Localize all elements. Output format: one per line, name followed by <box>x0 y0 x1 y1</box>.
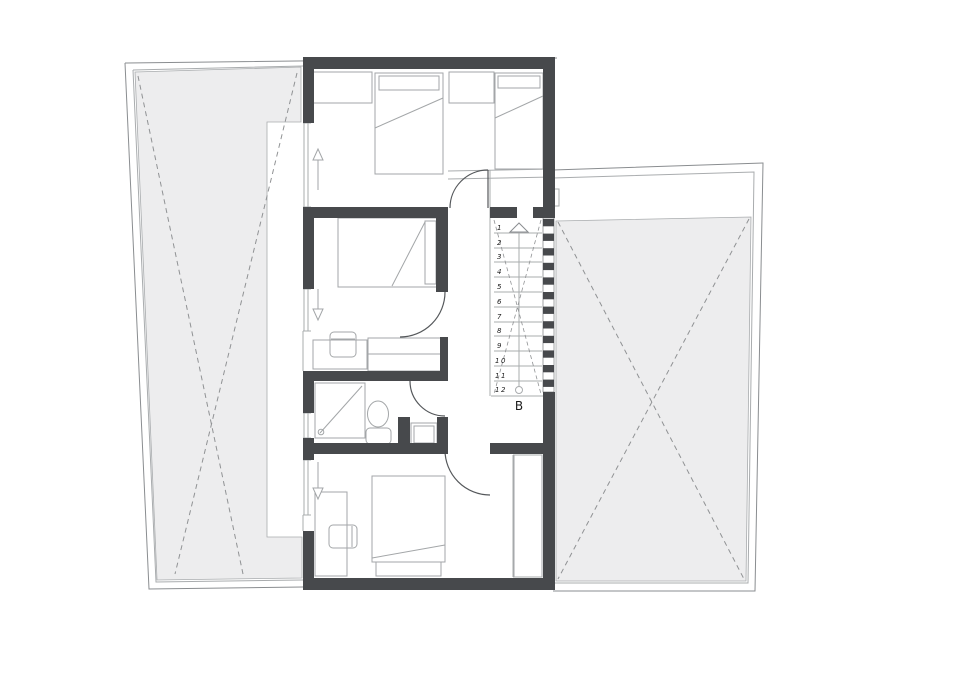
vanity-chair <box>330 332 356 357</box>
desk <box>315 492 347 576</box>
stair-step-numbers: 1 2 3 4 5 6 7 8 9 10 11 12 <box>495 224 507 394</box>
toilet-tank <box>366 428 391 444</box>
left-facade-windows <box>303 123 311 531</box>
wall-wc-stub-left <box>398 417 410 447</box>
right-roof-surface <box>556 217 751 581</box>
bed-top-right <box>495 73 543 169</box>
corridor <box>313 332 442 371</box>
wall-opening <box>517 207 533 218</box>
wall-bathroom-top <box>303 371 448 381</box>
closet-bottom <box>513 455 542 577</box>
step-label: 10 <box>495 357 507 365</box>
left-roof-surface <box>135 67 302 580</box>
wall-right-stair-checker <box>543 218 554 392</box>
door-bottom-bedroom-swing <box>445 450 490 495</box>
floor-plan-page: 1 2 3 4 5 6 7 8 9 10 11 12 B <box>0 0 960 693</box>
step-label: 3 <box>497 253 503 261</box>
arrow-up-icon <box>313 149 323 190</box>
wall-bathroom-bottom <box>303 443 448 454</box>
toilet <box>366 401 391 444</box>
bedroom-middle <box>338 218 438 287</box>
pillow <box>498 76 540 88</box>
bed-bottom <box>372 476 445 576</box>
door-top-bedroom <box>450 170 488 208</box>
step-label: 4 <box>497 268 503 276</box>
staircase: 1 2 3 4 5 6 7 8 9 10 11 12 B <box>490 170 543 413</box>
bedroom-bottom <box>315 455 542 577</box>
stair-entry-label: B <box>515 399 523 413</box>
wall-right-upper <box>543 57 555 218</box>
step-label: 2 <box>497 239 503 247</box>
wall-bottom <box>303 578 555 590</box>
window-middle-bedroom <box>303 289 311 331</box>
wall-mid-horizontal-left <box>303 207 448 218</box>
step-label: 8 <box>497 327 503 335</box>
floor-plan-drawing: 1 2 3 4 5 6 7 8 9 10 11 12 B <box>0 0 960 693</box>
wardrobe-hatch-middle <box>449 72 494 103</box>
bed-top-left <box>375 73 443 174</box>
wall-left-seg-1 <box>303 57 314 123</box>
door-swing <box>450 170 488 208</box>
wall-top <box>303 57 555 69</box>
wall-closet-stub <box>440 337 448 375</box>
wall-bedroom-bottom-top <box>490 443 555 454</box>
step-label: 7 <box>497 313 503 321</box>
arrow-down-icon <box>313 289 323 320</box>
bathroom <box>315 383 437 446</box>
door-bathroom-swing <box>410 381 445 416</box>
stair-direction-arrow <box>510 223 528 232</box>
desk-chair <box>329 525 357 548</box>
bedroom-top <box>313 72 543 174</box>
step-label: 5 <box>497 283 503 291</box>
door-middle-bedroom-swing <box>400 292 445 337</box>
step-label: 9 <box>497 342 503 350</box>
wall-left-seg-2 <box>303 207 314 289</box>
pillow <box>425 221 436 284</box>
vanity-desk <box>313 340 367 369</box>
pillow <box>379 76 439 90</box>
wardrobe-hatch-left <box>313 72 372 103</box>
pillow <box>376 562 441 576</box>
shower <box>315 383 365 438</box>
step-label: 1 <box>497 224 503 232</box>
window-bottom-bedroom <box>303 460 311 515</box>
step-label: 11 <box>495 372 507 380</box>
toilet-bowl <box>368 401 389 427</box>
bed-middle <box>338 218 438 287</box>
stair-walk-start <box>516 387 523 394</box>
window-bathroom <box>303 413 311 438</box>
wall-bedroom-middle-right <box>436 218 448 292</box>
left-roof <box>125 58 557 589</box>
hall-threshold-lines <box>448 169 553 179</box>
step-label: 12 <box>495 386 507 394</box>
step-label: 6 <box>497 298 503 306</box>
right-roof <box>553 163 763 591</box>
wall-wc-stub-right <box>437 417 448 447</box>
washing-machine <box>411 423 437 446</box>
wall-right-lower <box>543 392 555 590</box>
window-top-bedroom <box>303 123 311 207</box>
